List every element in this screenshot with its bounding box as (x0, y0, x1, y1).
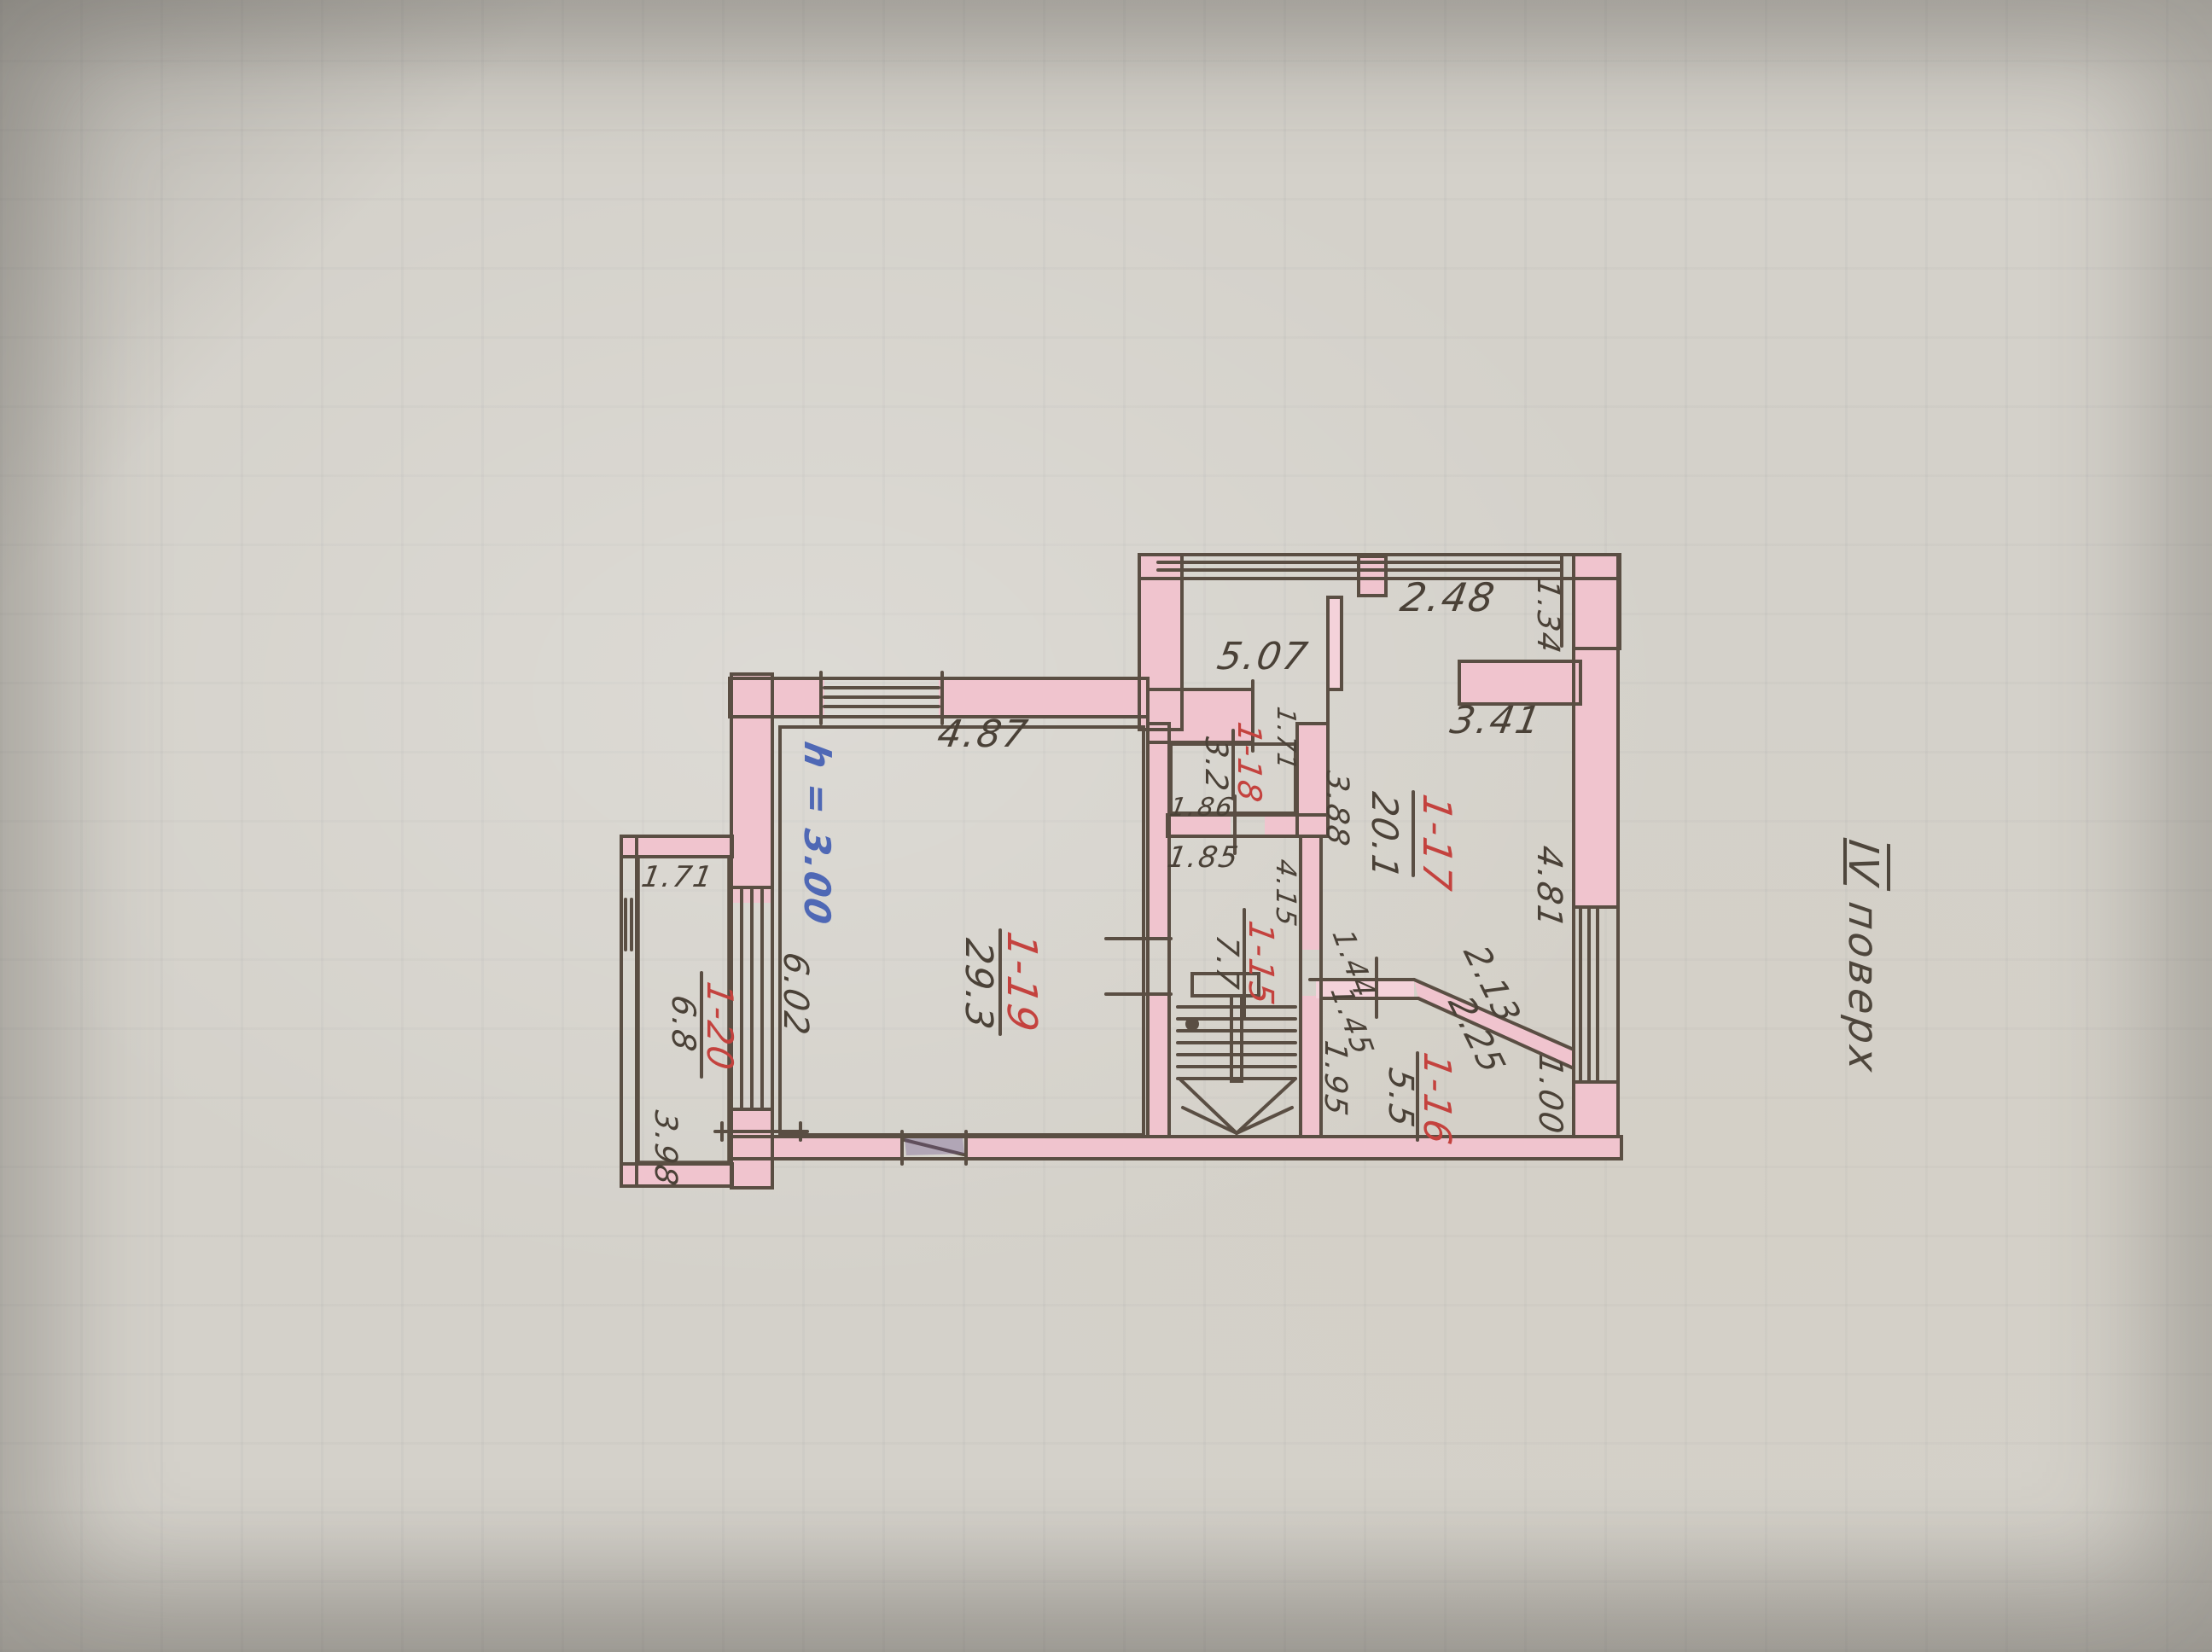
dim-6-02: 6.02 (778, 950, 812, 1038)
dim-1-00: 1.00 (1534, 1052, 1567, 1137)
ink-smudge (905, 1138, 964, 1155)
dim-1-71-niche: 1.71 (1272, 705, 1298, 773)
dim-1-85: 1.85 (1165, 843, 1242, 872)
room-18-area: 3.2 (1200, 735, 1231, 794)
dim-1-34: 1.34 (1532, 576, 1563, 657)
room-16-number: 1-16 (1417, 1050, 1455, 1149)
room-19-number: 1-19 (1001, 928, 1042, 1035)
room-17-number: 1-17 (1417, 792, 1457, 895)
room-16-area: 5.5 (1383, 1066, 1417, 1131)
dim-1-71-loggia: 1.71 (639, 863, 716, 892)
room-20-area: 6.8 (667, 992, 700, 1055)
dim-3-98: 3.98 (649, 1108, 680, 1190)
floor-title-numeral: IV (1839, 837, 1887, 891)
ceiling-height-note: h = 3.00 (799, 739, 835, 928)
floor-title-word: поверх (1839, 899, 1887, 1078)
room-15-area: 7.7 (1211, 933, 1242, 992)
dim-4-81: 4.81 (1532, 843, 1566, 932)
room-18-number: 1-18 (1233, 720, 1266, 806)
room-20-number: 1-20 (701, 980, 737, 1074)
dim-1-86: 1.86 (1167, 795, 1236, 821)
dim-2-48: 2.48 (1398, 578, 1499, 617)
wall-outlines (621, 555, 1621, 1188)
room-19-area: 29.3 (959, 936, 997, 1033)
dim-3-88: 3.88 (1321, 769, 1352, 850)
photographed-paper: 2.48 5.07 3.41 4.87 1.71 1.86 1.85 1.34 … (0, 0, 2212, 1652)
floor-plan: 2.48 5.07 3.41 4.87 1.71 1.86 1.85 1.34 … (0, 0, 2212, 1652)
floor-title: IVповерх (1839, 837, 1887, 1078)
dim-3-41: 3.41 (1447, 702, 1545, 740)
room-15-number: 1-15 (1243, 918, 1278, 1009)
dim-5-07: 5.07 (1214, 638, 1312, 676)
dim-4-87: 4.87 (934, 716, 1032, 753)
dim-4-15: 4.15 (1272, 858, 1300, 930)
room-17-area: 20.1 (1366, 790, 1402, 883)
floor-plan-drawing (0, 0, 2212, 1652)
